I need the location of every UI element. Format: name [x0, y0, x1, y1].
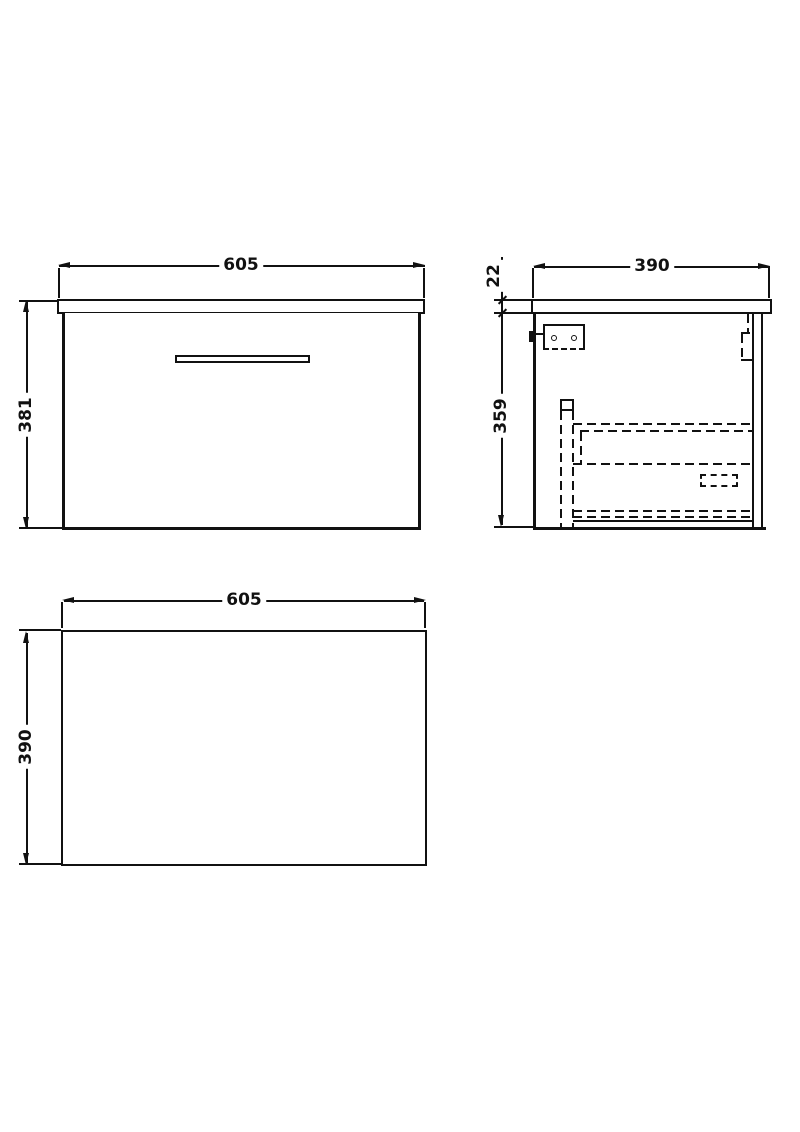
plan-width-extension-line-right — [424, 602, 426, 628]
plan-worktop-outline — [61, 630, 427, 866]
plan-width-dim-label: 605 — [222, 591, 266, 611]
plan-width-arrow-left — [62, 597, 74, 603]
plan-depth-dim-label: 390 — [17, 725, 37, 769]
plan-width-extension-line-left — [61, 602, 63, 628]
technical-drawing-sheet: 605 381 — [0, 0, 800, 1132]
plan-view: 605 390 — [0, 0, 800, 1132]
plan-depth-arrow-top — [23, 631, 29, 643]
plan-depth-extension-line-bottom — [19, 863, 61, 865]
plan-depth-extension-line-top — [19, 629, 61, 631]
